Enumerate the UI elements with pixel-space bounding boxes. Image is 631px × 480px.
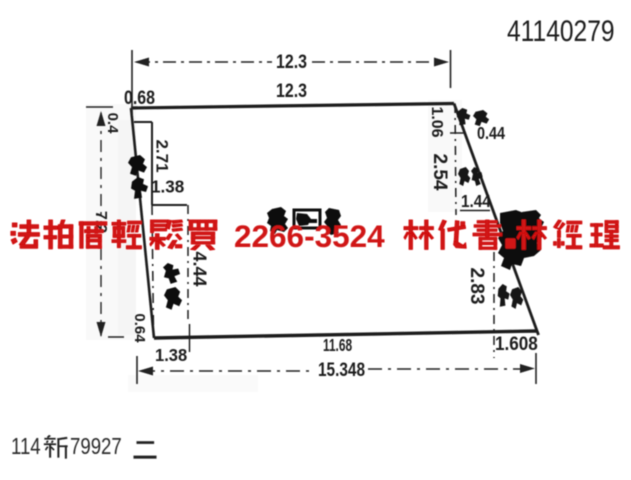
svg-text:114: 114	[11, 434, 41, 459]
svg-text:0.64: 0.64	[131, 313, 148, 343]
svg-text:2.71: 2.71	[153, 139, 172, 172]
svg-text:12.3: 12.3	[276, 80, 307, 102]
svg-text:15.348: 15.348	[318, 358, 365, 380]
svg-text:2.54: 2.54	[429, 154, 450, 191]
svg-text:2.83: 2.83	[466, 268, 487, 305]
svg-text:4.44: 4.44	[189, 251, 209, 286]
svg-text:2266-3524: 2266-3524	[234, 218, 385, 254]
svg-text:1.06: 1.06	[428, 106, 445, 137]
svg-text:1.38: 1.38	[155, 344, 188, 365]
svg-text:11.68: 11.68	[323, 336, 352, 356]
svg-text:12.3: 12.3	[276, 51, 307, 73]
svg-text:0.68: 0.68	[124, 87, 155, 109]
svg-text:41140279: 41140279	[507, 14, 615, 48]
svg-text:1.38: 1.38	[151, 176, 184, 197]
svg-text:0.4: 0.4	[104, 113, 121, 135]
svg-text:1.44: 1.44	[461, 191, 491, 211]
svg-text:0.44: 0.44	[477, 124, 505, 144]
svg-text:1.608: 1.608	[495, 333, 538, 354]
svg-text:79927: 79927	[70, 434, 122, 459]
